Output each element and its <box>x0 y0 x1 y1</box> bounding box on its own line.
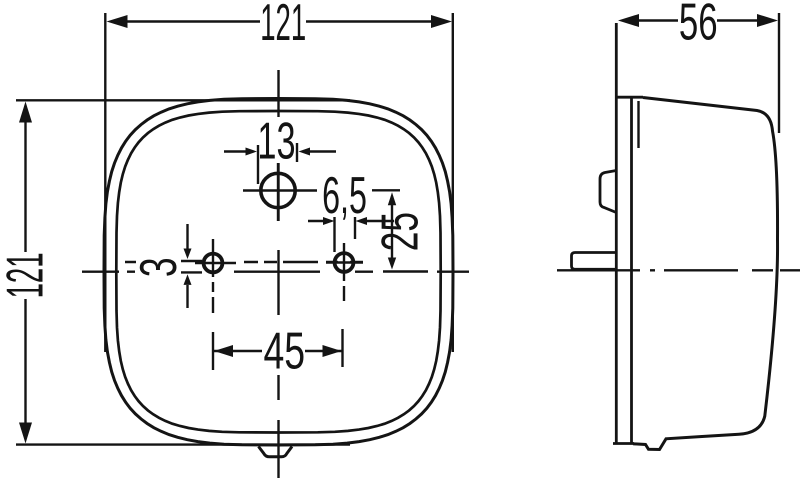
svg-text:25: 25 <box>372 212 429 251</box>
svg-text:6,5: 6,5 <box>322 167 367 225</box>
svg-text:45: 45 <box>263 321 305 380</box>
svg-text:13: 13 <box>257 112 295 170</box>
svg-text:121: 121 <box>0 252 54 298</box>
svg-text:121: 121 <box>260 0 306 51</box>
svg-text:3: 3 <box>130 257 187 277</box>
svg-text:56: 56 <box>679 0 718 51</box>
